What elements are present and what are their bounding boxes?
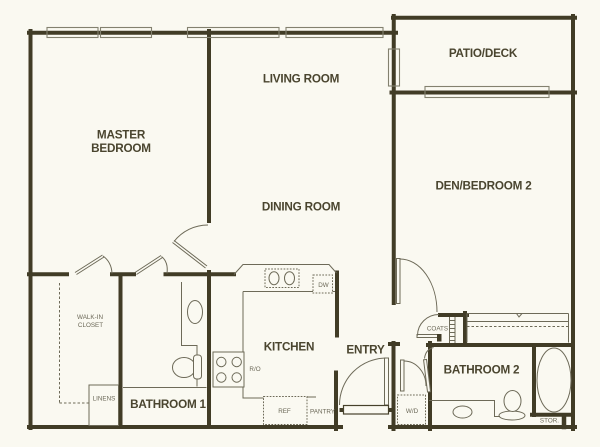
svg-text:BEDROOM: BEDROOM [91, 142, 151, 155]
svg-text:DEN/BEDROOM 2: DEN/BEDROOM 2 [435, 180, 532, 193]
svg-text:BATHROOM 2: BATHROOM 2 [444, 364, 520, 377]
svg-text:CLOSET: CLOSET [78, 322, 103, 329]
svg-text:WALK-IN: WALK-IN [77, 314, 103, 321]
svg-text:LIVING ROOM: LIVING ROOM [263, 73, 339, 86]
svg-text:MASTER: MASTER [97, 129, 146, 142]
svg-text:STOR.: STOR. [540, 417, 559, 424]
svg-text:KITCHEN: KITCHEN [264, 341, 315, 354]
svg-text:DW: DW [318, 282, 329, 289]
svg-text:PANTRY: PANTRY [310, 409, 336, 416]
svg-text:PATIO/DECK: PATIO/DECK [449, 47, 518, 60]
svg-text:COATS: COATS [427, 326, 448, 333]
svg-text:DINING ROOM: DINING ROOM [262, 201, 340, 214]
svg-text:R/O: R/O [249, 366, 260, 373]
svg-text:ENTRY: ENTRY [346, 344, 385, 357]
svg-text:LINENS: LINENS [93, 395, 116, 402]
svg-text:REF: REF [278, 408, 291, 415]
svg-text:W/D: W/D [406, 408, 419, 415]
svg-text:BATHROOM 1: BATHROOM 1 [130, 398, 206, 411]
